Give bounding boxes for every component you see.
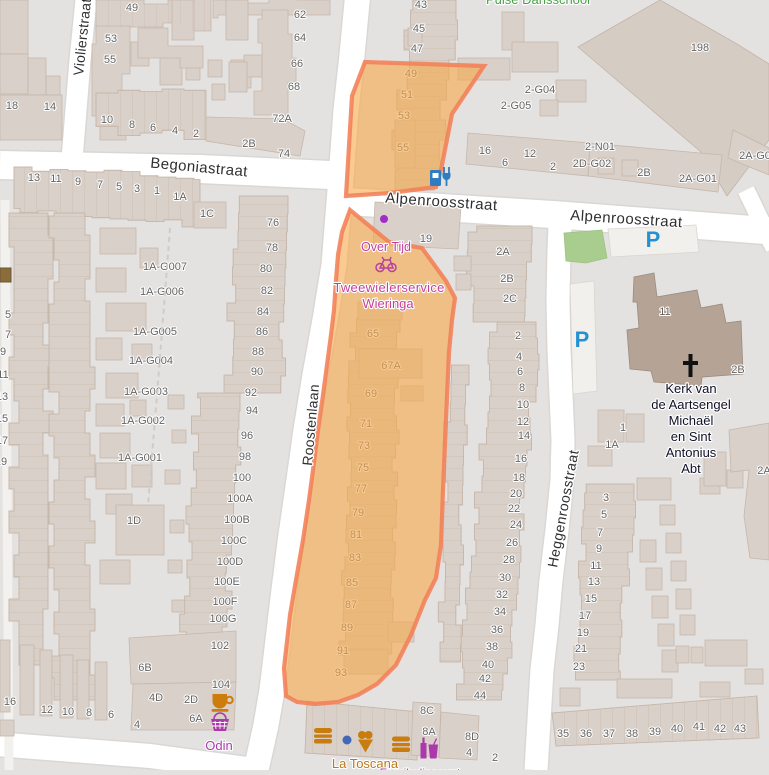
svg-text:102: 102 xyxy=(211,640,229,652)
svg-text:30: 30 xyxy=(499,572,511,584)
svg-text:14: 14 xyxy=(44,101,56,113)
svg-text:1: 1 xyxy=(154,185,160,197)
svg-text:45: 45 xyxy=(413,23,425,35)
svg-text:1A: 1A xyxy=(605,439,619,451)
svg-text:P: P xyxy=(646,227,661,252)
svg-text:2C: 2C xyxy=(503,293,517,305)
svg-text:100D: 100D xyxy=(217,556,243,568)
svg-text:7: 7 xyxy=(5,329,11,341)
svg-text:4: 4 xyxy=(516,351,522,363)
svg-text:10: 10 xyxy=(62,706,74,718)
svg-text:6: 6 xyxy=(517,366,523,378)
svg-text:98: 98 xyxy=(239,451,251,463)
svg-text:9: 9 xyxy=(596,543,602,555)
svg-text:1: 1 xyxy=(620,422,626,434)
svg-text:41: 41 xyxy=(693,721,705,733)
svg-text:104: 104 xyxy=(212,679,230,691)
svg-text:80: 80 xyxy=(260,263,272,275)
svg-text:1A-G003: 1A-G003 xyxy=(124,386,168,398)
svg-text:66: 66 xyxy=(291,58,303,70)
svg-text:en Sint: en Sint xyxy=(671,429,712,444)
svg-text:2D-G02: 2D-G02 xyxy=(573,158,612,170)
svg-text:21: 21 xyxy=(575,643,587,655)
svg-text:8C: 8C xyxy=(420,705,434,717)
svg-text:13: 13 xyxy=(28,172,40,184)
svg-text:19: 19 xyxy=(0,456,7,468)
svg-text:19: 19 xyxy=(577,627,589,639)
svg-text:86: 86 xyxy=(256,326,268,338)
svg-text:55: 55 xyxy=(104,54,116,66)
svg-text:40: 40 xyxy=(671,723,683,735)
svg-text:2B: 2B xyxy=(500,273,513,285)
svg-text:Kerk van: Kerk van xyxy=(665,381,716,396)
svg-text:6B: 6B xyxy=(138,662,151,674)
svg-text:5: 5 xyxy=(601,509,607,521)
svg-text:8A: 8A xyxy=(422,726,436,738)
svg-text:42: 42 xyxy=(479,673,491,685)
svg-text:100G: 100G xyxy=(210,613,237,625)
svg-text:16: 16 xyxy=(515,453,527,465)
svg-text:44: 44 xyxy=(474,690,486,702)
svg-text:8: 8 xyxy=(129,119,135,131)
svg-text:36: 36 xyxy=(491,624,503,636)
svg-text:43: 43 xyxy=(415,0,427,11)
svg-text:2A-G01: 2A-G01 xyxy=(679,173,717,185)
svg-text:74: 74 xyxy=(278,148,290,160)
svg-text:2A: 2A xyxy=(496,246,510,258)
svg-text:10: 10 xyxy=(101,114,113,126)
svg-text:17: 17 xyxy=(579,610,591,622)
svg-text:22: 22 xyxy=(508,503,520,515)
svg-text:6A: 6A xyxy=(189,713,203,725)
svg-text:7: 7 xyxy=(597,527,603,539)
svg-text:13: 13 xyxy=(588,576,600,588)
svg-text:2-G04: 2-G04 xyxy=(525,84,556,96)
svg-text:34: 34 xyxy=(494,606,506,618)
svg-text:11: 11 xyxy=(659,306,670,318)
svg-text:2A-G0: 2A-G0 xyxy=(739,150,769,162)
svg-text:1A-G002: 1A-G002 xyxy=(121,415,165,427)
svg-text:36: 36 xyxy=(580,728,592,740)
svg-text:39: 39 xyxy=(649,726,661,738)
svg-text:62: 62 xyxy=(294,9,306,21)
svg-text:1A-G004: 1A-G004 xyxy=(129,355,173,367)
svg-text:2B: 2B xyxy=(242,138,255,150)
svg-text:2B: 2B xyxy=(637,167,650,179)
svg-text:Tweewielerservice: Tweewielerservice xyxy=(333,280,444,295)
svg-text:35: 35 xyxy=(557,728,569,740)
svg-text:8: 8 xyxy=(519,382,525,394)
svg-text:4: 4 xyxy=(172,125,178,137)
svg-text:64: 64 xyxy=(294,32,306,44)
svg-text:5: 5 xyxy=(116,181,122,193)
svg-text:2B: 2B xyxy=(731,364,744,376)
svg-text:11: 11 xyxy=(590,560,601,572)
svg-text:1A-G006: 1A-G006 xyxy=(140,286,184,298)
svg-text:P: P xyxy=(575,327,590,352)
svg-text:90: 90 xyxy=(251,366,263,378)
svg-text:92: 92 xyxy=(245,387,257,399)
svg-text:84: 84 xyxy=(257,306,269,318)
svg-text:38: 38 xyxy=(626,728,638,740)
svg-text:78: 78 xyxy=(266,242,278,254)
svg-text:26: 26 xyxy=(506,537,518,549)
svg-text:Michaël: Michaël xyxy=(669,413,714,428)
svg-text:3: 3 xyxy=(134,183,140,195)
svg-text:82: 82 xyxy=(261,285,273,297)
svg-text:16: 16 xyxy=(4,696,16,708)
svg-text:24: 24 xyxy=(510,519,522,531)
svg-text:19: 19 xyxy=(420,233,432,245)
svg-text:28: 28 xyxy=(503,554,515,566)
svg-text:12: 12 xyxy=(517,416,529,428)
svg-text:53: 53 xyxy=(105,33,117,45)
svg-text:4D: 4D xyxy=(149,692,163,704)
svg-text:1A-G001: 1A-G001 xyxy=(118,452,162,464)
svg-text:2D: 2D xyxy=(184,694,198,706)
svg-text:100A: 100A xyxy=(227,493,253,505)
svg-text:4: 4 xyxy=(466,747,472,759)
svg-text:8D: 8D xyxy=(465,731,479,743)
svg-text:5: 5 xyxy=(5,309,11,321)
svg-text:Antonius: Antonius xyxy=(666,445,717,460)
svg-text:Odin: Odin xyxy=(205,738,232,753)
svg-text:6: 6 xyxy=(502,157,508,169)
svg-text:37: 37 xyxy=(603,728,615,740)
svg-text:Over Tijd: Over Tijd xyxy=(361,240,411,254)
svg-text:2: 2 xyxy=(193,128,199,140)
svg-text:13: 13 xyxy=(0,391,8,403)
svg-text:15: 15 xyxy=(0,413,8,425)
svg-text:8: 8 xyxy=(86,707,92,719)
svg-text:100B: 100B xyxy=(224,514,250,526)
svg-text:11: 11 xyxy=(0,369,9,381)
svg-text:Pulse Dansschool: Pulse Dansschool xyxy=(486,0,590,7)
svg-text:2-G05: 2-G05 xyxy=(501,100,532,112)
svg-text:Abt: Abt xyxy=(681,461,701,476)
svg-text:2-N01: 2-N01 xyxy=(585,141,615,153)
svg-text:88: 88 xyxy=(252,346,264,358)
svg-text:94: 94 xyxy=(246,405,258,417)
svg-text:12: 12 xyxy=(41,704,53,716)
svg-text:40: 40 xyxy=(482,659,494,671)
svg-text:4: 4 xyxy=(134,719,140,731)
svg-text:1D: 1D xyxy=(127,515,141,527)
svg-text:2: 2 xyxy=(492,752,498,764)
svg-text:47: 47 xyxy=(411,43,423,55)
svg-text:100C: 100C xyxy=(221,535,247,547)
svg-text:Wieringa: Wieringa xyxy=(362,296,414,311)
svg-text:Familudiscount: Familudiscount xyxy=(380,766,461,770)
svg-text:96: 96 xyxy=(241,430,253,442)
svg-text:2: 2 xyxy=(550,161,556,173)
svg-text:198: 198 xyxy=(691,42,709,54)
svg-text:18: 18 xyxy=(513,472,525,484)
svg-text:72A: 72A xyxy=(272,113,292,125)
svg-text:42: 42 xyxy=(714,723,726,735)
svg-text:3: 3 xyxy=(603,492,609,504)
svg-text:9: 9 xyxy=(75,176,81,188)
svg-text:14: 14 xyxy=(518,430,530,442)
svg-text:43: 43 xyxy=(734,723,746,735)
svg-text:11: 11 xyxy=(50,173,61,185)
svg-text:17: 17 xyxy=(0,435,8,447)
svg-text:7: 7 xyxy=(97,179,103,191)
svg-text:1A-G005: 1A-G005 xyxy=(133,326,177,338)
svg-text:16: 16 xyxy=(479,145,491,157)
svg-text:de Aartsengel: de Aartsengel xyxy=(651,397,731,412)
svg-text:9: 9 xyxy=(0,346,6,358)
svg-text:18: 18 xyxy=(6,100,18,112)
svg-text:68: 68 xyxy=(288,81,300,93)
svg-text:10: 10 xyxy=(517,399,529,411)
svg-text:12: 12 xyxy=(524,148,536,160)
svg-text:1A: 1A xyxy=(173,191,187,203)
svg-text:6: 6 xyxy=(108,709,114,721)
svg-text:20: 20 xyxy=(510,488,522,500)
svg-text:100F: 100F xyxy=(212,596,237,608)
svg-text:49: 49 xyxy=(126,2,138,14)
svg-text:100E: 100E xyxy=(214,576,240,588)
svg-text:76: 76 xyxy=(267,217,279,229)
svg-text:2A: 2A xyxy=(757,465,769,477)
svg-text:2: 2 xyxy=(515,330,521,342)
svg-text:38: 38 xyxy=(486,641,498,653)
svg-text:1C: 1C xyxy=(200,208,214,220)
svg-text:32: 32 xyxy=(496,589,508,601)
svg-text:23: 23 xyxy=(573,661,585,673)
svg-text:1A-G007: 1A-G007 xyxy=(143,261,187,273)
svg-text:15: 15 xyxy=(585,593,597,605)
svg-text:100: 100 xyxy=(233,472,251,484)
svg-text:6: 6 xyxy=(150,122,156,134)
